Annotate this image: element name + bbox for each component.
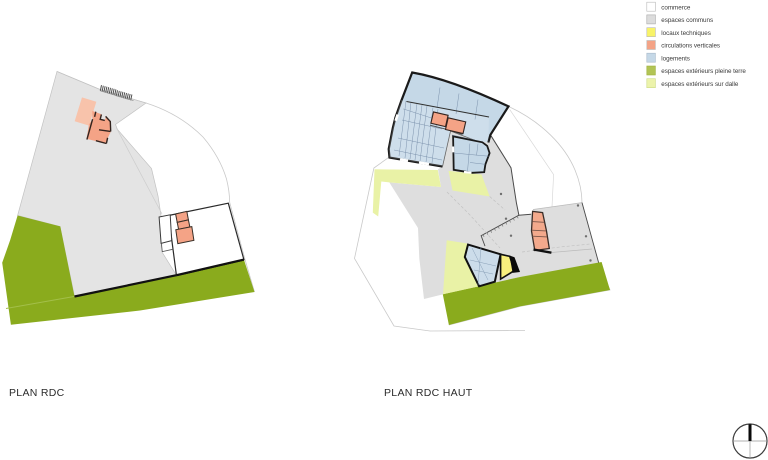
svg-text:espaces communs: espaces communs — [661, 17, 713, 24]
svg-text:circulations verticales: circulations verticales — [661, 43, 720, 50]
svg-text:locaux techniques: locaux techniques — [661, 30, 711, 37]
svg-text:commerce: commerce — [661, 4, 691, 11]
svg-text:logements: logements — [661, 55, 690, 62]
svg-text:espaces extérieurs sur dalle: espaces extérieurs sur dalle — [661, 81, 739, 88]
svg-text:espaces extérieurs pleine terr: espaces extérieurs pleine terre — [661, 68, 746, 75]
svg-text:PLAN RDC: PLAN RDC — [9, 387, 65, 399]
svg-text:PLAN RDC HAUT: PLAN RDC HAUT — [384, 387, 473, 399]
